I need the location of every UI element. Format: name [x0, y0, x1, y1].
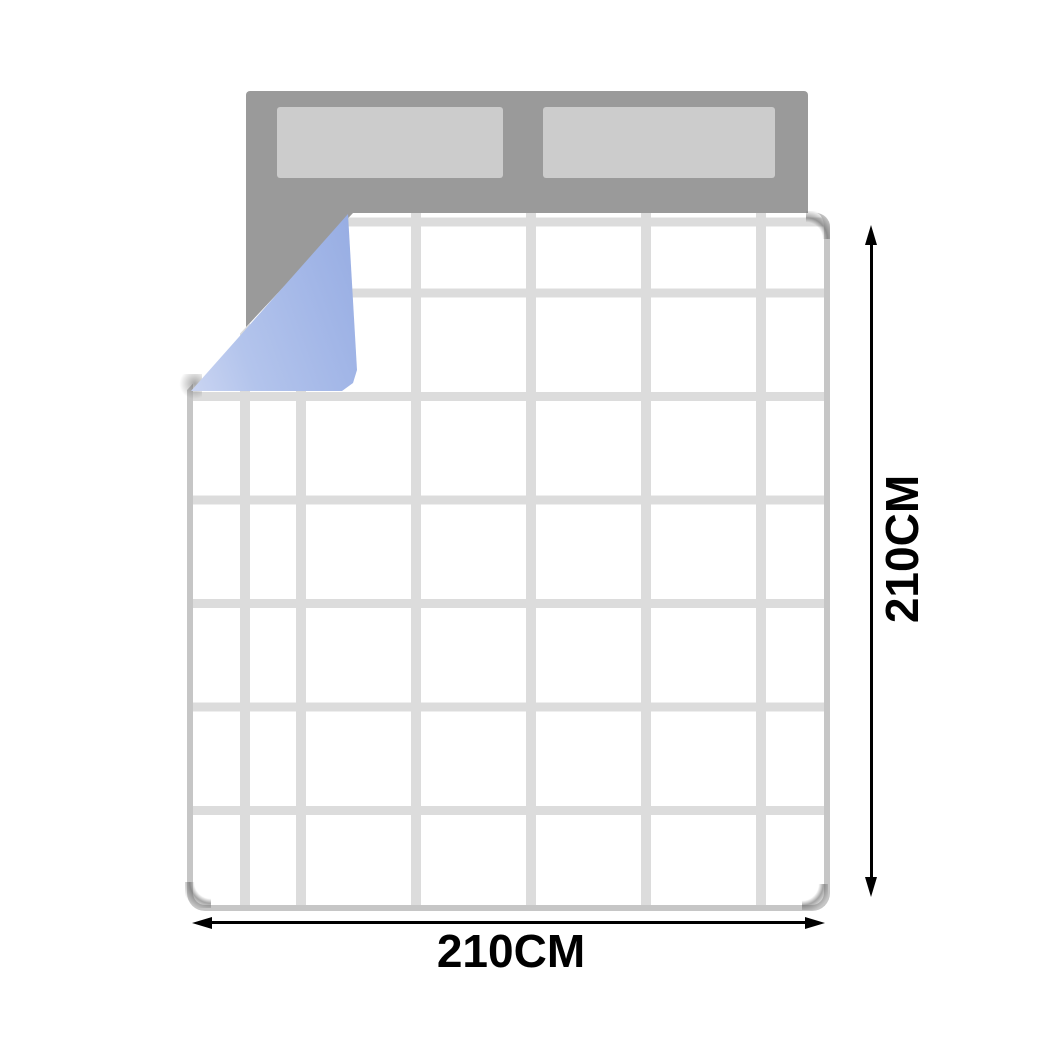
height-dimension-line [870, 244, 873, 878]
pillow-left [277, 107, 503, 178]
bedding-dimension-diagram: 210CM 210CM [0, 0, 1050, 1050]
pillow-right [543, 107, 775, 178]
arrow-right-icon [805, 917, 825, 929]
height-dimension-label: 210CM [875, 475, 929, 623]
arrow-up-icon [865, 225, 877, 245]
width-dimension-label: 210CM [437, 924, 585, 978]
arrow-down-icon [865, 877, 877, 897]
arrow-left-icon [192, 917, 212, 929]
